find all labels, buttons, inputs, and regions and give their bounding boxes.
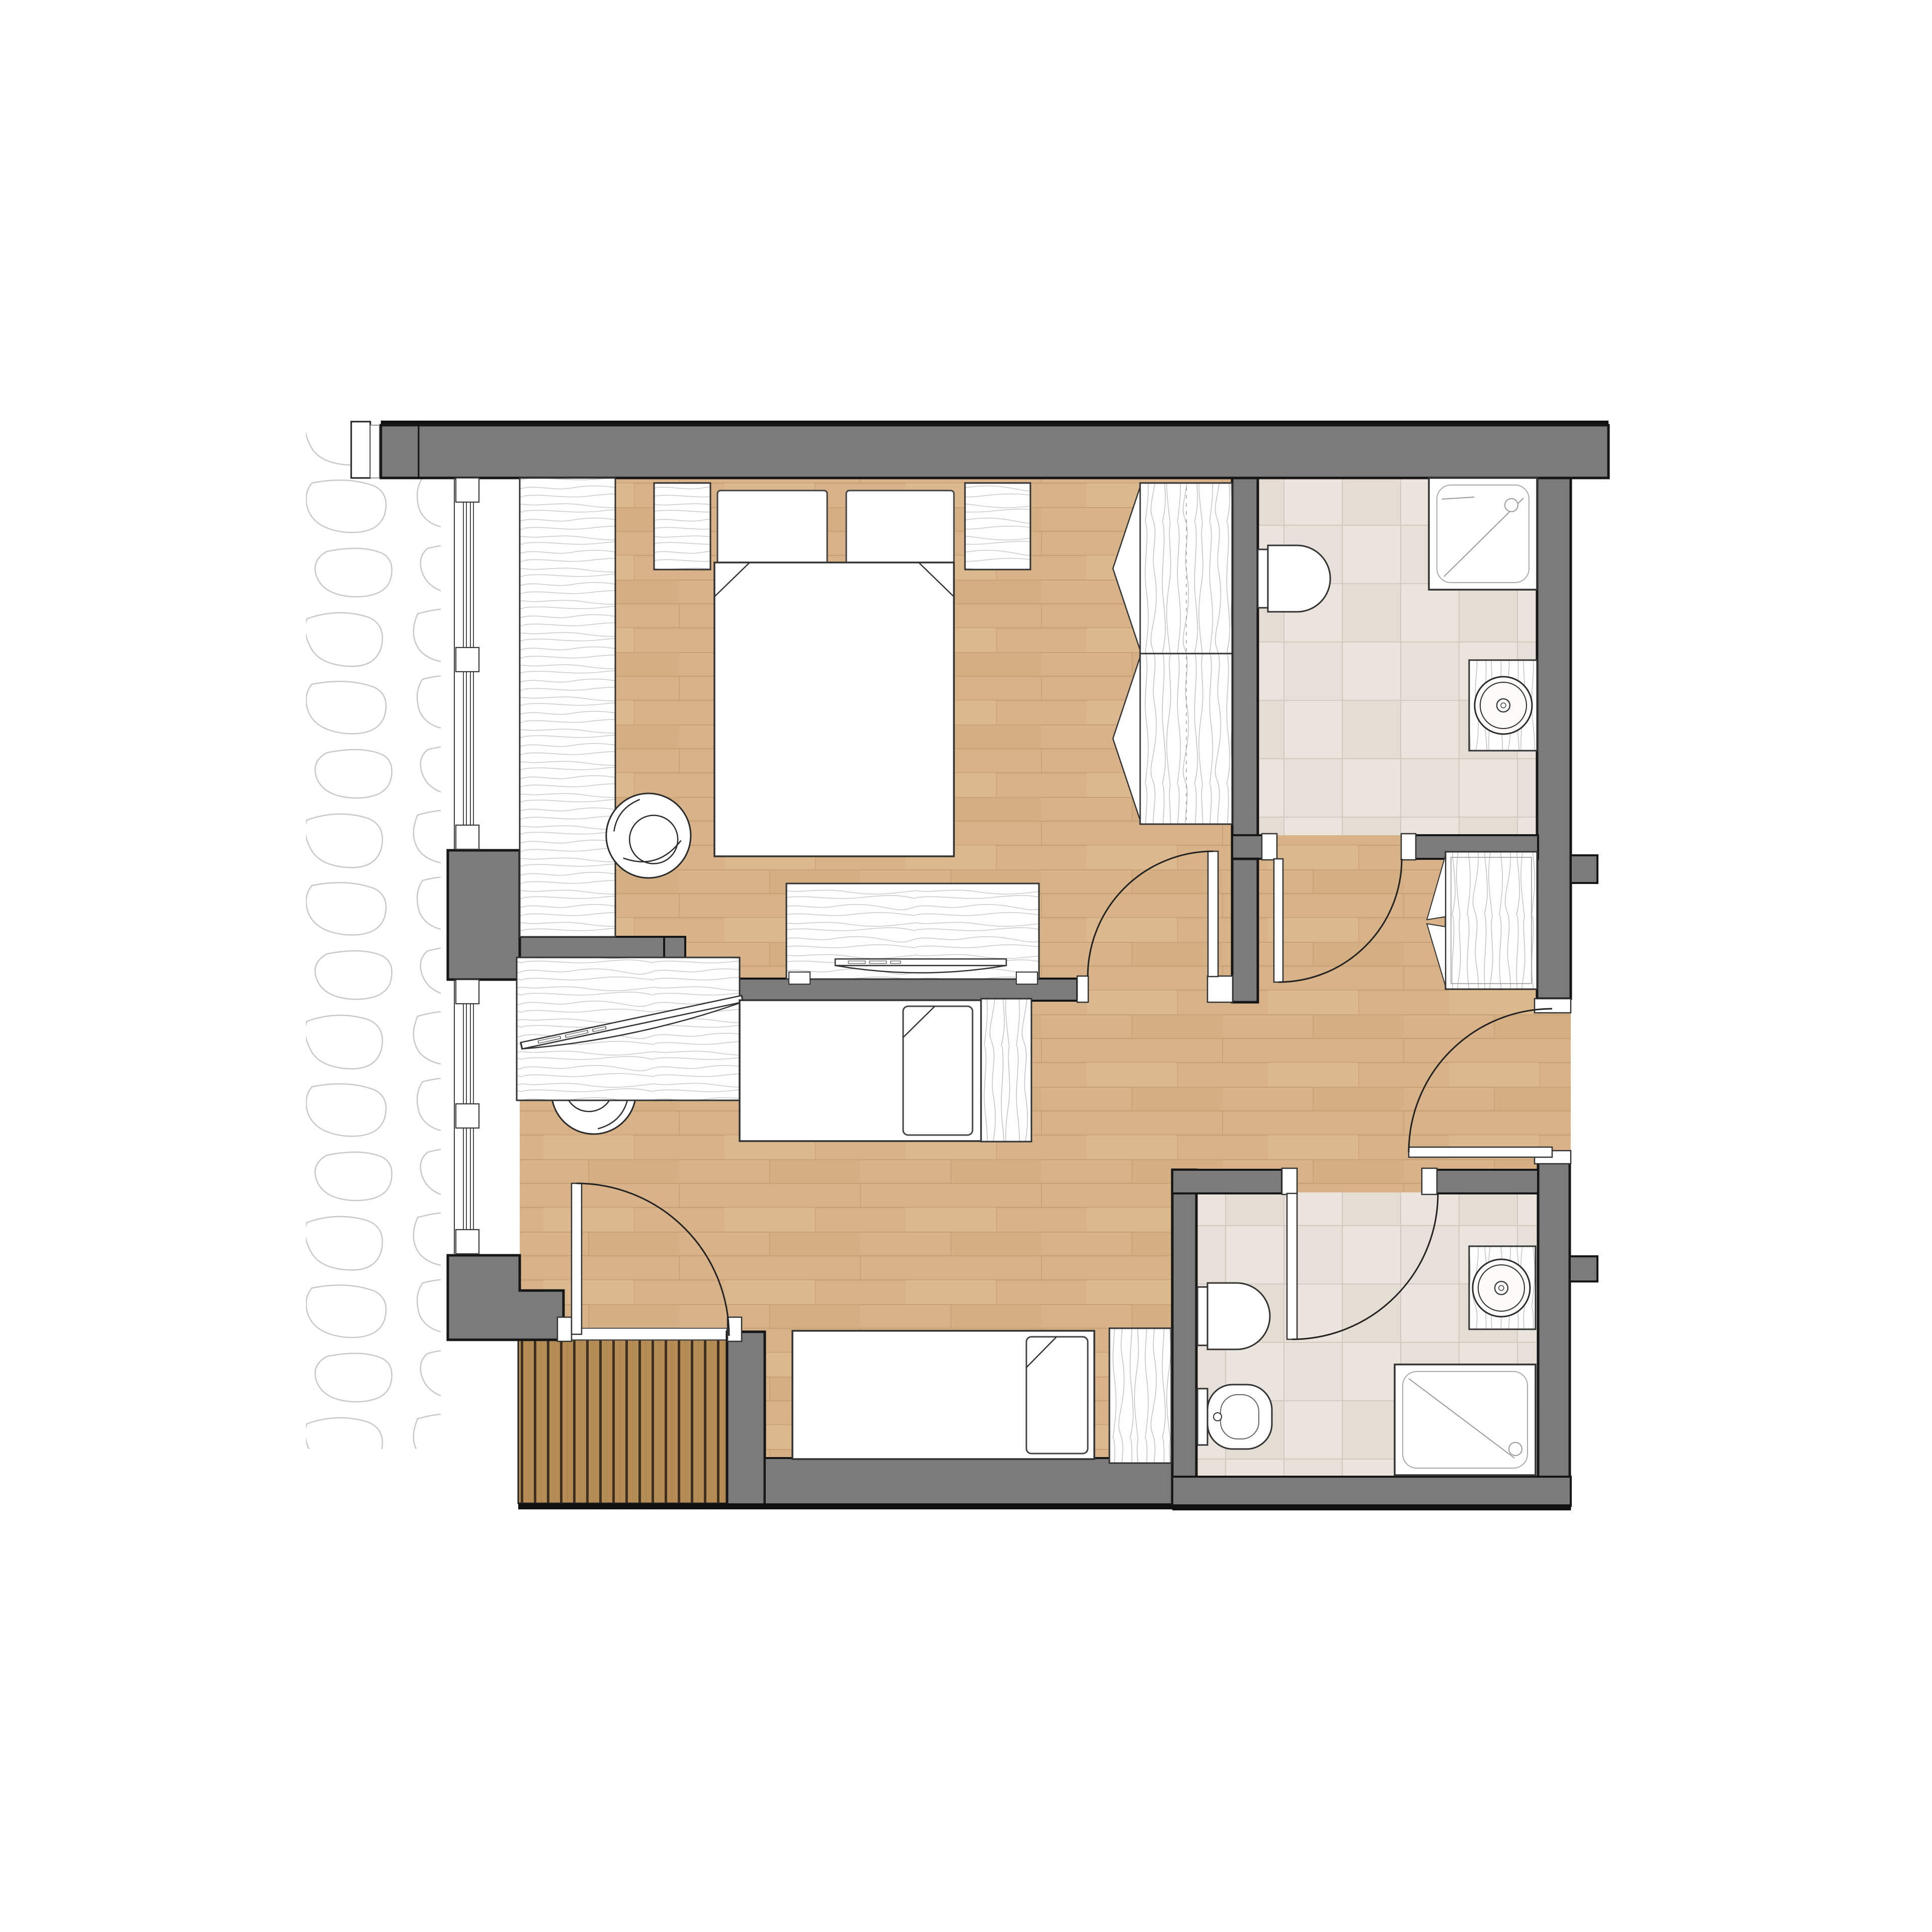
window-1-cap-bottom [456,825,479,849]
deck-threshold [571,1328,727,1340]
jamb-bath-top-right [1401,834,1416,860]
double-bed-pillow-right [846,491,954,570]
deck-bottom-black-edge [518,1503,765,1509]
wall-right-lower [1538,1162,1570,1508]
wall-bath-top-left [1232,478,1258,859]
tv-console-foot-right [1016,972,1037,984]
wall-bath-top-bottom-left [1232,835,1262,859]
jamb-bedroom-door-left [1077,976,1088,1002]
single-bed-bottom-headboard [1109,1328,1171,1463]
window-1-cap-top [456,478,479,502]
window-2-cap-top [456,980,479,1004]
shower-bath-bottom-tray [1395,1364,1536,1475]
wall-bath-bottom-top-left [1172,1170,1282,1193]
floor-bath-bottom-threshold [1297,1170,1422,1194]
double-bed-pillow-left [717,491,827,570]
door-bath-top-leaf [1274,859,1283,982]
door-master-bedroom-leaf [1208,851,1218,977]
wall-divider-left [520,937,683,958]
shower-bath-top-tray [1429,478,1537,590]
sink-bath-bottom [1473,1259,1530,1317]
wall-top-end-cap [351,422,370,478]
wall-top [381,425,1608,478]
floor-entry-threshold [1538,1011,1571,1152]
window-1-transom [456,648,479,672]
wall-hall-left [1232,859,1258,1002]
wall-bath-bottom-bottom [1172,1477,1571,1506]
floor-plan-canvas [0,0,1932,1932]
jamb-bedroom-door-right [1207,976,1233,1002]
wall-bottom-room2 [765,1458,1172,1504]
wall-right-tab-lower [1570,1256,1597,1281]
wall-deck-stub [727,1332,765,1508]
wall-bath-bottom-top-right [1436,1170,1538,1193]
window-2-cap-bottom [456,1230,479,1254]
shower-bath-bottom-drain [1509,1442,1522,1456]
wall-right-upper [1537,478,1571,999]
jamb-entry-top [1535,999,1571,1013]
wall-bath-bottom-black-edge [1172,1504,1571,1510]
jamb-bath-bottom-right [1422,1168,1437,1194]
jamb-bath-top-left [1262,834,1277,860]
door-bath-bottom-leaf [1287,1193,1297,1339]
wall-right-tab-upper [1571,855,1597,883]
window-bench-seat [520,478,615,937]
single-bed-bottom-pillow [1026,1337,1088,1454]
window-2-transom [456,1104,479,1128]
single-bed-middle-headboard [981,999,1031,1142]
hall-cabinet [1445,852,1537,989]
double-bed-duvet [714,562,954,856]
sink-bath-top [1475,677,1532,734]
single-bed-middle-pillow [903,1006,973,1135]
wall-bath-bottom-left [1172,1170,1196,1504]
door-deck-leaf [572,1183,582,1334]
wall-top-window-sliver [370,425,379,478]
stone-terrace-wall [306,430,441,1449]
jamb-deck-left [557,1317,572,1341]
toilet-bath-bottom [1197,1283,1270,1349]
floor-bath-top-threshold [1276,835,1401,859]
toilet-bath-top [1258,545,1330,612]
door-entry-leaf [1409,1147,1552,1157]
nightstand-right [965,483,1030,570]
shower-bath-top-drain [1505,499,1518,512]
nightstand-left [654,483,710,570]
wall-window-pillar-1 [448,850,520,980]
tv-console-foot-left [789,972,810,984]
wall-bottom-room2-black-edge [765,1503,1172,1509]
jamb-bath-bottom-left [1282,1168,1297,1194]
